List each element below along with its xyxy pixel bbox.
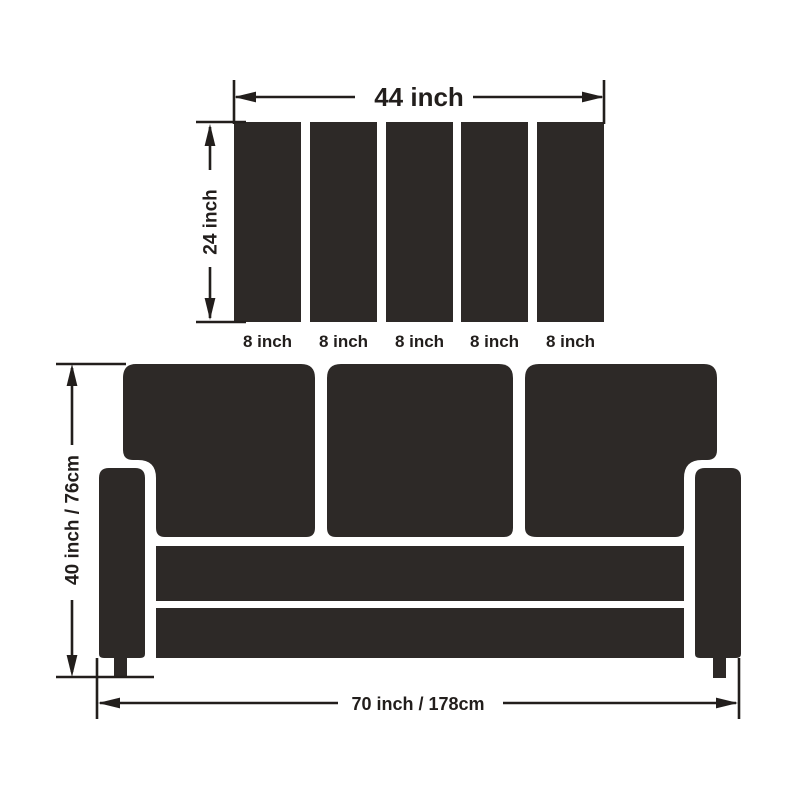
sofa-back-cushion-left — [123, 364, 315, 537]
panel-5 — [537, 122, 604, 322]
panel-width-label: 44 inch — [374, 82, 464, 112]
arrow-up-icon — [67, 364, 78, 386]
arrow-left-icon — [234, 92, 256, 103]
panel-height-label: 24 inch — [201, 189, 222, 254]
sofa-width-label: 70 inch / 178cm — [351, 694, 484, 714]
panel-strip — [234, 122, 604, 322]
arrow-right-icon — [582, 92, 604, 103]
sofa-leg-left — [114, 658, 127, 678]
panel-size-label-2: 8 inch — [319, 332, 368, 351]
sofa-back-cushion-middle — [327, 364, 513, 537]
panel-4 — [461, 122, 528, 322]
arrow-right-icon — [716, 698, 738, 709]
panel-size-label-1: 8 inch — [243, 332, 292, 351]
sofa-back-cushion-right — [525, 364, 717, 537]
panel-3 — [386, 122, 453, 322]
sofa-armrest-right — [695, 468, 741, 658]
panel-size-label-5: 8 inch — [546, 332, 595, 351]
arrow-left-icon — [98, 698, 120, 709]
panel-1 — [234, 122, 301, 322]
dark-shapes — [99, 122, 741, 678]
dimension-diagram: 44 inch 24 inch 8 inch 8 inch 8 inch 8 i… — [0, 0, 800, 800]
sofa-armrest-left — [99, 468, 145, 658]
dimension-diagram-page: 44 inch 24 inch 8 inch 8 inch 8 inch 8 i… — [0, 0, 800, 800]
arrow-up-icon — [205, 124, 216, 146]
arrow-down-icon — [67, 655, 78, 677]
panel-size-label-4: 8 inch — [470, 332, 519, 351]
sofa-base-band — [156, 608, 684, 658]
panel-size-label-3: 8 inch — [395, 332, 444, 351]
sofa-height-label: 40 inch / 76cm — [63, 455, 84, 585]
sofa-seat-band — [156, 546, 684, 601]
arrow-down-icon — [205, 298, 216, 320]
sofa-silhouette — [99, 364, 741, 678]
sofa-leg-right — [713, 658, 726, 678]
panel-2 — [310, 122, 377, 322]
